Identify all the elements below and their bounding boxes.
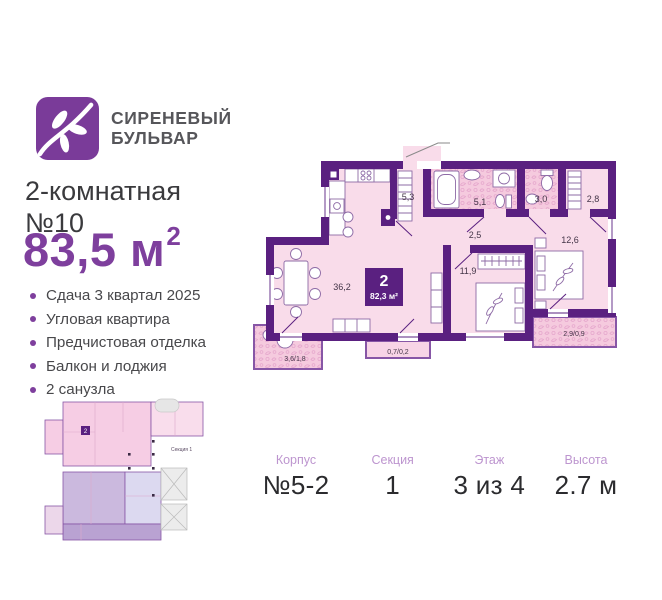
mini-apartment-3 [63,472,125,524]
feature-item: Балкон и лоджия [30,358,206,375]
bed-icon [535,251,583,299]
room-label-wardrobe: 2,8 [587,194,600,204]
logo-line2: БУЛЬВАР [111,129,232,149]
logo: СИРЕНЕВЫЙ БУЛЬВАР [36,97,232,160]
building-info: Корпус №5-2 Секция 1 Этаж 3 из 4 Высота … [248,453,634,501]
sofa-icon [333,319,370,332]
feature-text: Балкон и лоджия [46,358,167,375]
info-value: 2.7 м [538,470,634,501]
room-label-corridor: 2,5 [469,230,482,240]
info-section: Секция 1 [345,453,441,501]
info-label: Корпус [248,453,344,467]
mini-plan-badge: 2 [81,426,90,435]
info-floor: Этаж 3 из 4 [441,453,537,501]
mini-apartment-highlighted [63,402,151,466]
feature-text: Сдача 3 квартал 2025 [46,287,200,304]
info-height: Высота 2.7 м [538,453,634,501]
area-sup: 2 [166,221,181,251]
mini-apartment-4 [125,472,161,524]
mini-section-label: Секция 1 [171,447,192,453]
stool-icon [343,212,353,222]
apartment-type: 2-комнатная [25,176,181,208]
info-value: №5-2 [248,470,344,501]
bullet-icon [30,316,36,322]
vent-icon [331,172,337,178]
logo-text: СИРЕНЕВЫЙ БУЛЬВАР [111,109,232,148]
mini-apartment-6 [45,506,63,534]
mini-apartment-highlighted-wing [45,420,63,454]
room-label-balcony-small: 0,7/0,2 [387,349,409,356]
badge-rooms: 2 [380,273,389,290]
feature-text: Угловая квартира [46,311,170,328]
vent-icon [386,215,391,220]
feature-item: Предчистовая отделка [30,334,206,351]
apartment-area: 83,5 м2 [23,222,180,277]
room-label-bedroom2: 12,6 [561,235,579,245]
bed-icon [476,283,525,331]
mini-apartment-5 [63,524,161,540]
toilet-icon [541,170,553,191]
wardrobe-shelf-icon [568,171,581,209]
info-value: 1 [345,470,441,501]
room-label-balcony: 2,9/0,9 [563,331,585,338]
info-building: Корпус №5-2 [248,453,344,501]
info-label: Высота [538,453,634,467]
info-label: Этаж [441,453,537,467]
room-label-bathroom2: 3,0 [535,194,548,204]
nightstand-icon [535,301,546,309]
bathtub-icon [434,171,459,208]
bullet-icon [30,363,36,369]
lilac-boulevard-logo-icon [36,97,99,160]
info-label: Секция [345,453,441,467]
info-value: 3 из 4 [441,470,537,501]
bullet-icon [30,340,36,346]
room-label-hall: 5,3 [402,192,415,202]
room-label-bathroom1: 5,1 [474,197,487,207]
bullet-icon [30,293,36,299]
bullet-icon [30,387,36,393]
hanger-rack-icon [478,254,525,269]
floor-plan: 36,2 5,3 5,1 3,0 2,8 2,5 11,9 12,6 3,6/1… [238,141,650,393]
sofa-icon [431,273,442,323]
area-unit: м [130,223,165,276]
feature-list: Сдача 3 квартал 2025 Угловая квартира Пр… [30,287,206,405]
apartment-flyer: СИРЕНЕВЫЙ БУЛЬВАР 2-комнатная №10 83,5 м… [0,0,662,600]
logo-line1: СИРЕНЕВЫЙ [111,109,232,129]
room-label-living: 36,2 [333,282,351,292]
washer-icon [493,170,515,187]
feature-item: Угловая квартира [30,311,206,328]
stool-icon [343,227,353,237]
feature-text: Предчистовая отделка [46,334,206,351]
feature-item: Сдача 3 квартал 2025 [30,287,206,304]
area-value: 83,5 [23,223,116,276]
badge-area: 82,3 м² [370,291,398,301]
room-label-loggia: 3,6/1,8 [284,356,306,363]
section-plan: 2 Секция 1 [35,396,235,546]
room-label-bedroom1: 11,9 [460,266,477,276]
plan-badge: 2 82,3 м² [365,268,403,306]
nightstand-icon [535,238,546,248]
sink-icon [464,170,480,180]
